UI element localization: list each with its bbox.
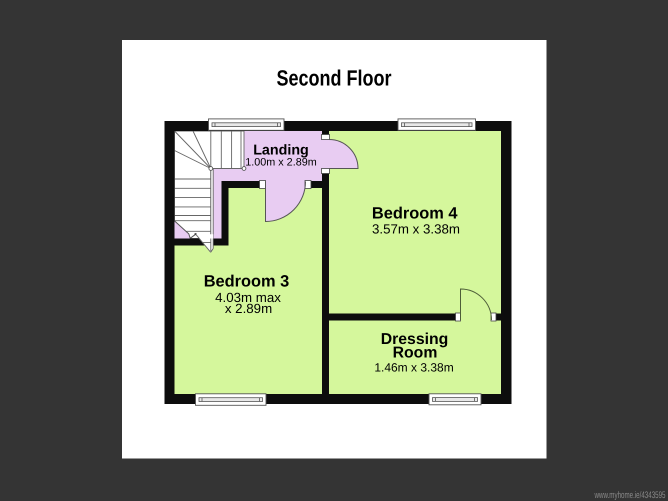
svg-text:3.57m x 3.38m: 3.57m x 3.38m bbox=[372, 222, 460, 237]
svg-text:www.myhome.ie/4343595: www.myhome.ie/4343595 bbox=[594, 490, 666, 501]
svg-text:1.46m x 3.38m: 1.46m x 3.38m bbox=[374, 361, 453, 375]
svg-text:Bedroom 4: Bedroom 4 bbox=[372, 205, 458, 223]
svg-text:x 2.89m: x 2.89m bbox=[225, 301, 272, 316]
svg-text:1.00m x 2.89m: 1.00m x 2.89m bbox=[245, 157, 316, 169]
svg-text:Second Floor: Second Floor bbox=[277, 66, 392, 91]
svg-text:Bedroom 3: Bedroom 3 bbox=[204, 273, 290, 291]
svg-text:Room: Room bbox=[393, 345, 438, 362]
